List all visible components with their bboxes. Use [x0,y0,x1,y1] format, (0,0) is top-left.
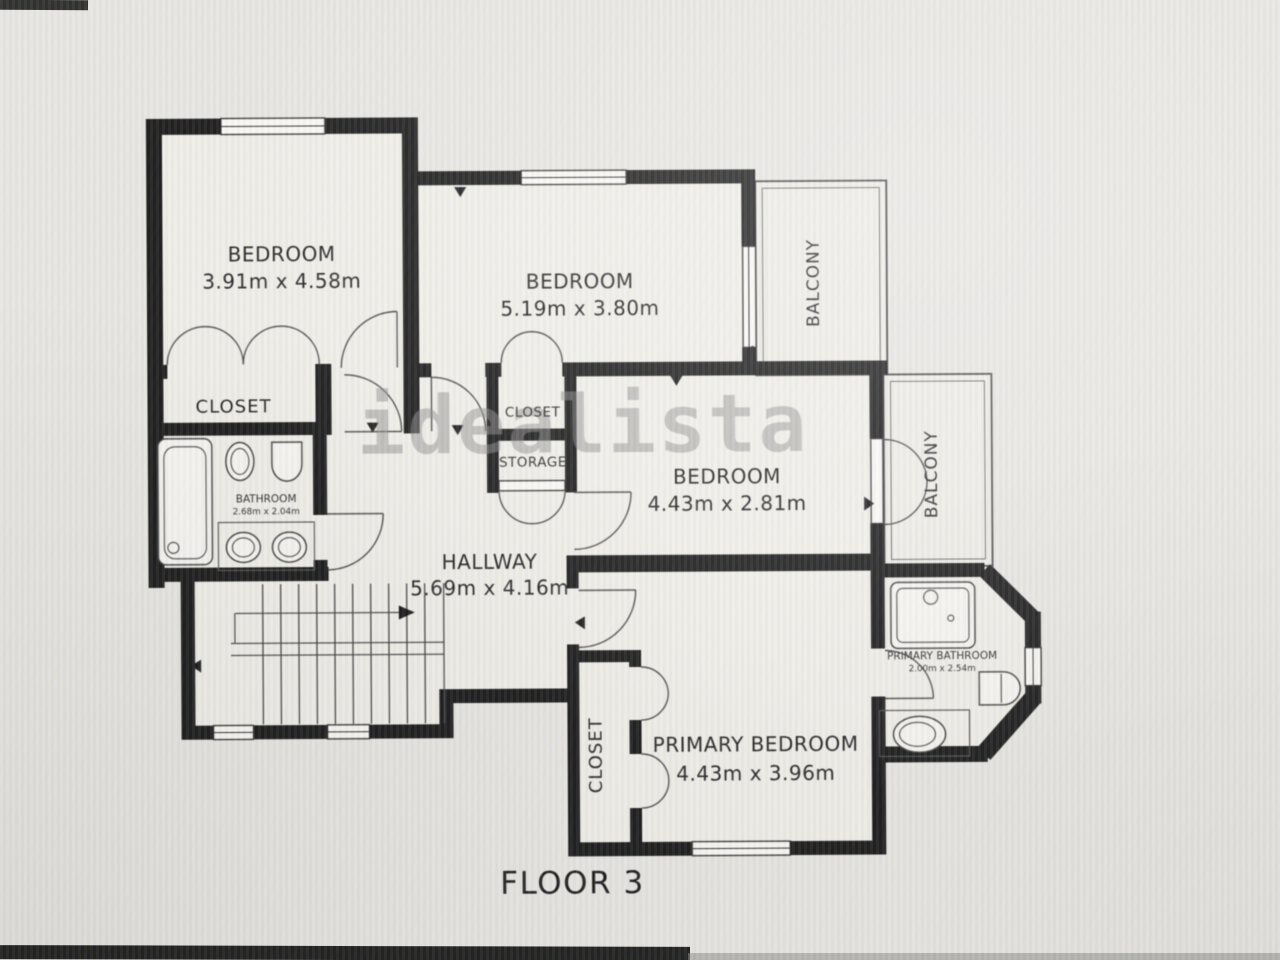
closet-primary-label: CLOSET [585,717,606,793]
hallway-dimensions: 5.69m x 4.16m [410,575,569,600]
primary-bathroom-dimensions: 2.00m x 2.54m [909,664,976,674]
primary-bathroom-label: PRIMARY BATHROOM [887,650,997,663]
threshold-storage [499,480,565,490]
photo-edge-artifact-bottom-right [688,953,1280,960]
primary-bedroom-dimensions: 4.43m x 3.96m [676,761,835,786]
sink-left [226,532,260,562]
floor-title: FLOOR 3 [500,865,645,902]
hallway-label: HALLWAY [442,550,538,575]
primary-bedroom-label: PRIMARY BEDROOM [653,732,859,757]
toilet-primary [893,716,945,752]
balcony-top-label: BALCONY [804,239,825,327]
closet-top-left-label: CLOSET [196,396,272,417]
window-balcony-door-right [871,439,884,524]
photo-edge-artifact-bottom [0,945,690,960]
balcony-right-label: BALCONY [922,430,943,518]
bedroom-top-middle-dimensions: 5.19m x 3.80m [500,296,659,321]
bathroom-label: BATHROOM [236,493,297,505]
bedroom-top-left-dimensions: 3.91m x 4.58m [202,269,361,294]
sink-right [272,532,306,562]
bedroom-top-left-label: BEDROOM [228,242,336,267]
bedroom-top-middle-label: BEDROOM [526,269,634,294]
closet-hall-label: CLOSET [505,404,561,420]
floor-plan-photo: idealista BEDROOM 3.91m x 4.58m BEDROOM … [0,0,1280,960]
photo-edge-artifact-top [0,0,88,10]
shower-tray [891,582,975,649]
bedroom-middle-right-dimensions: 4.43m x 2.81m [648,491,807,516]
floor-primary-bedroom [568,556,886,857]
bidet-primary [979,672,1020,705]
bathtub [158,439,213,565]
idealista-watermark: idealista [357,377,809,473]
bathroom-dimensions: 2.68m x 2.04m [233,507,300,517]
floor-plan: idealista BEDROOM 3.91m x 4.58m BEDROOM … [0,0,1280,960]
storage-label: STORAGE [499,454,567,470]
bidet [272,442,302,481]
bedroom-middle-right-label: BEDROOM [673,464,781,489]
